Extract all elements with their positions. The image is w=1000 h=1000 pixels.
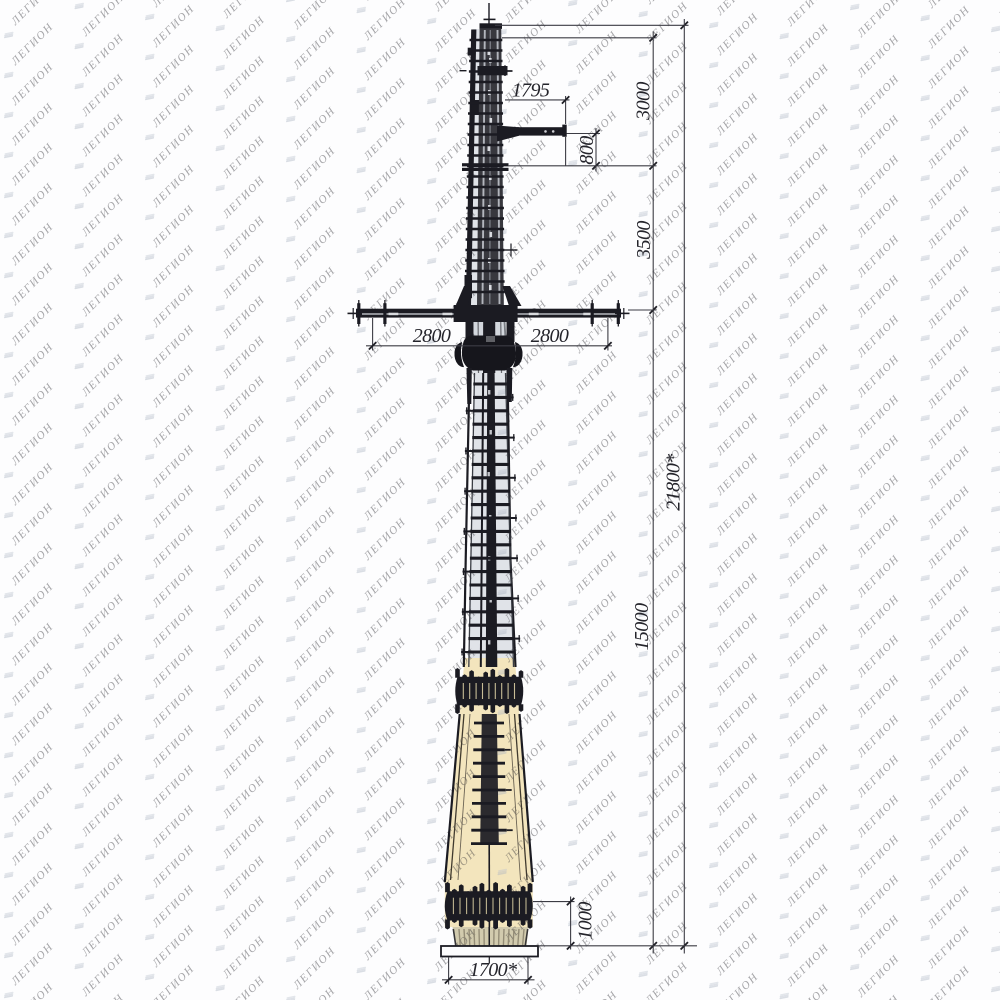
svg-text:3500: 3500 (633, 221, 655, 260)
svg-text:2800: 2800 (531, 325, 569, 347)
svg-text:21800*: 21800* (663, 454, 685, 511)
svg-text:1795: 1795 (512, 80, 550, 102)
svg-text:3000: 3000 (633, 82, 655, 121)
svg-text:1700*: 1700* (469, 959, 517, 981)
svg-text:15000: 15000 (631, 603, 653, 651)
svg-text:1000: 1000 (575, 902, 597, 940)
svg-text:2800: 2800 (413, 325, 451, 347)
svg-text:800: 800 (576, 136, 598, 165)
